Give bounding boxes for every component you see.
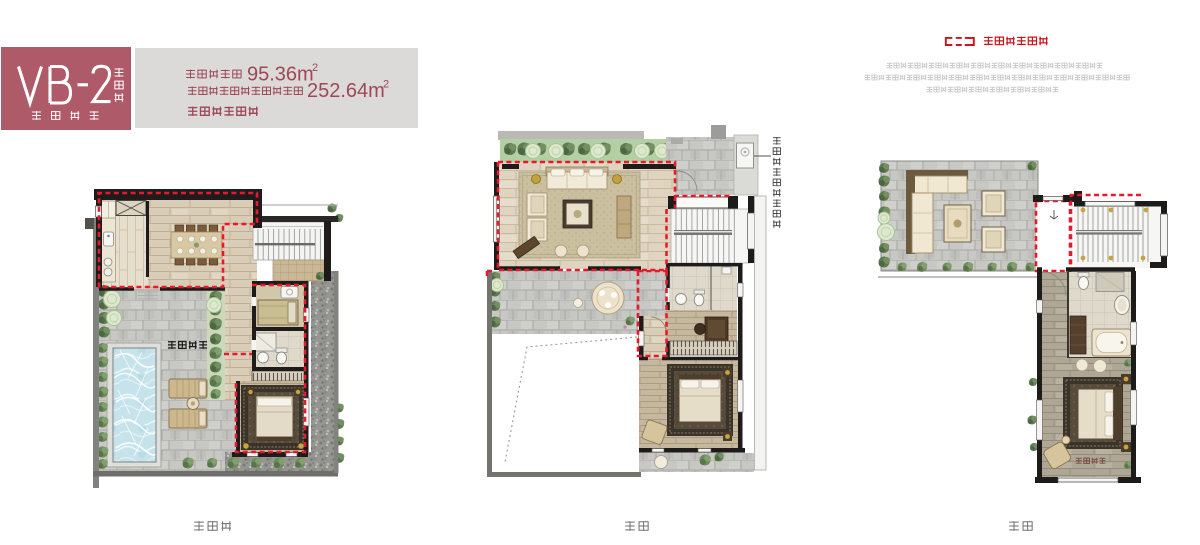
svg-text:2: 2 — [312, 62, 318, 74]
svg-text:2: 2 — [383, 79, 389, 91]
svg-text:95.36m: 95.36m — [247, 64, 314, 86]
svg-text:252.64m: 252.64m — [307, 80, 385, 102]
